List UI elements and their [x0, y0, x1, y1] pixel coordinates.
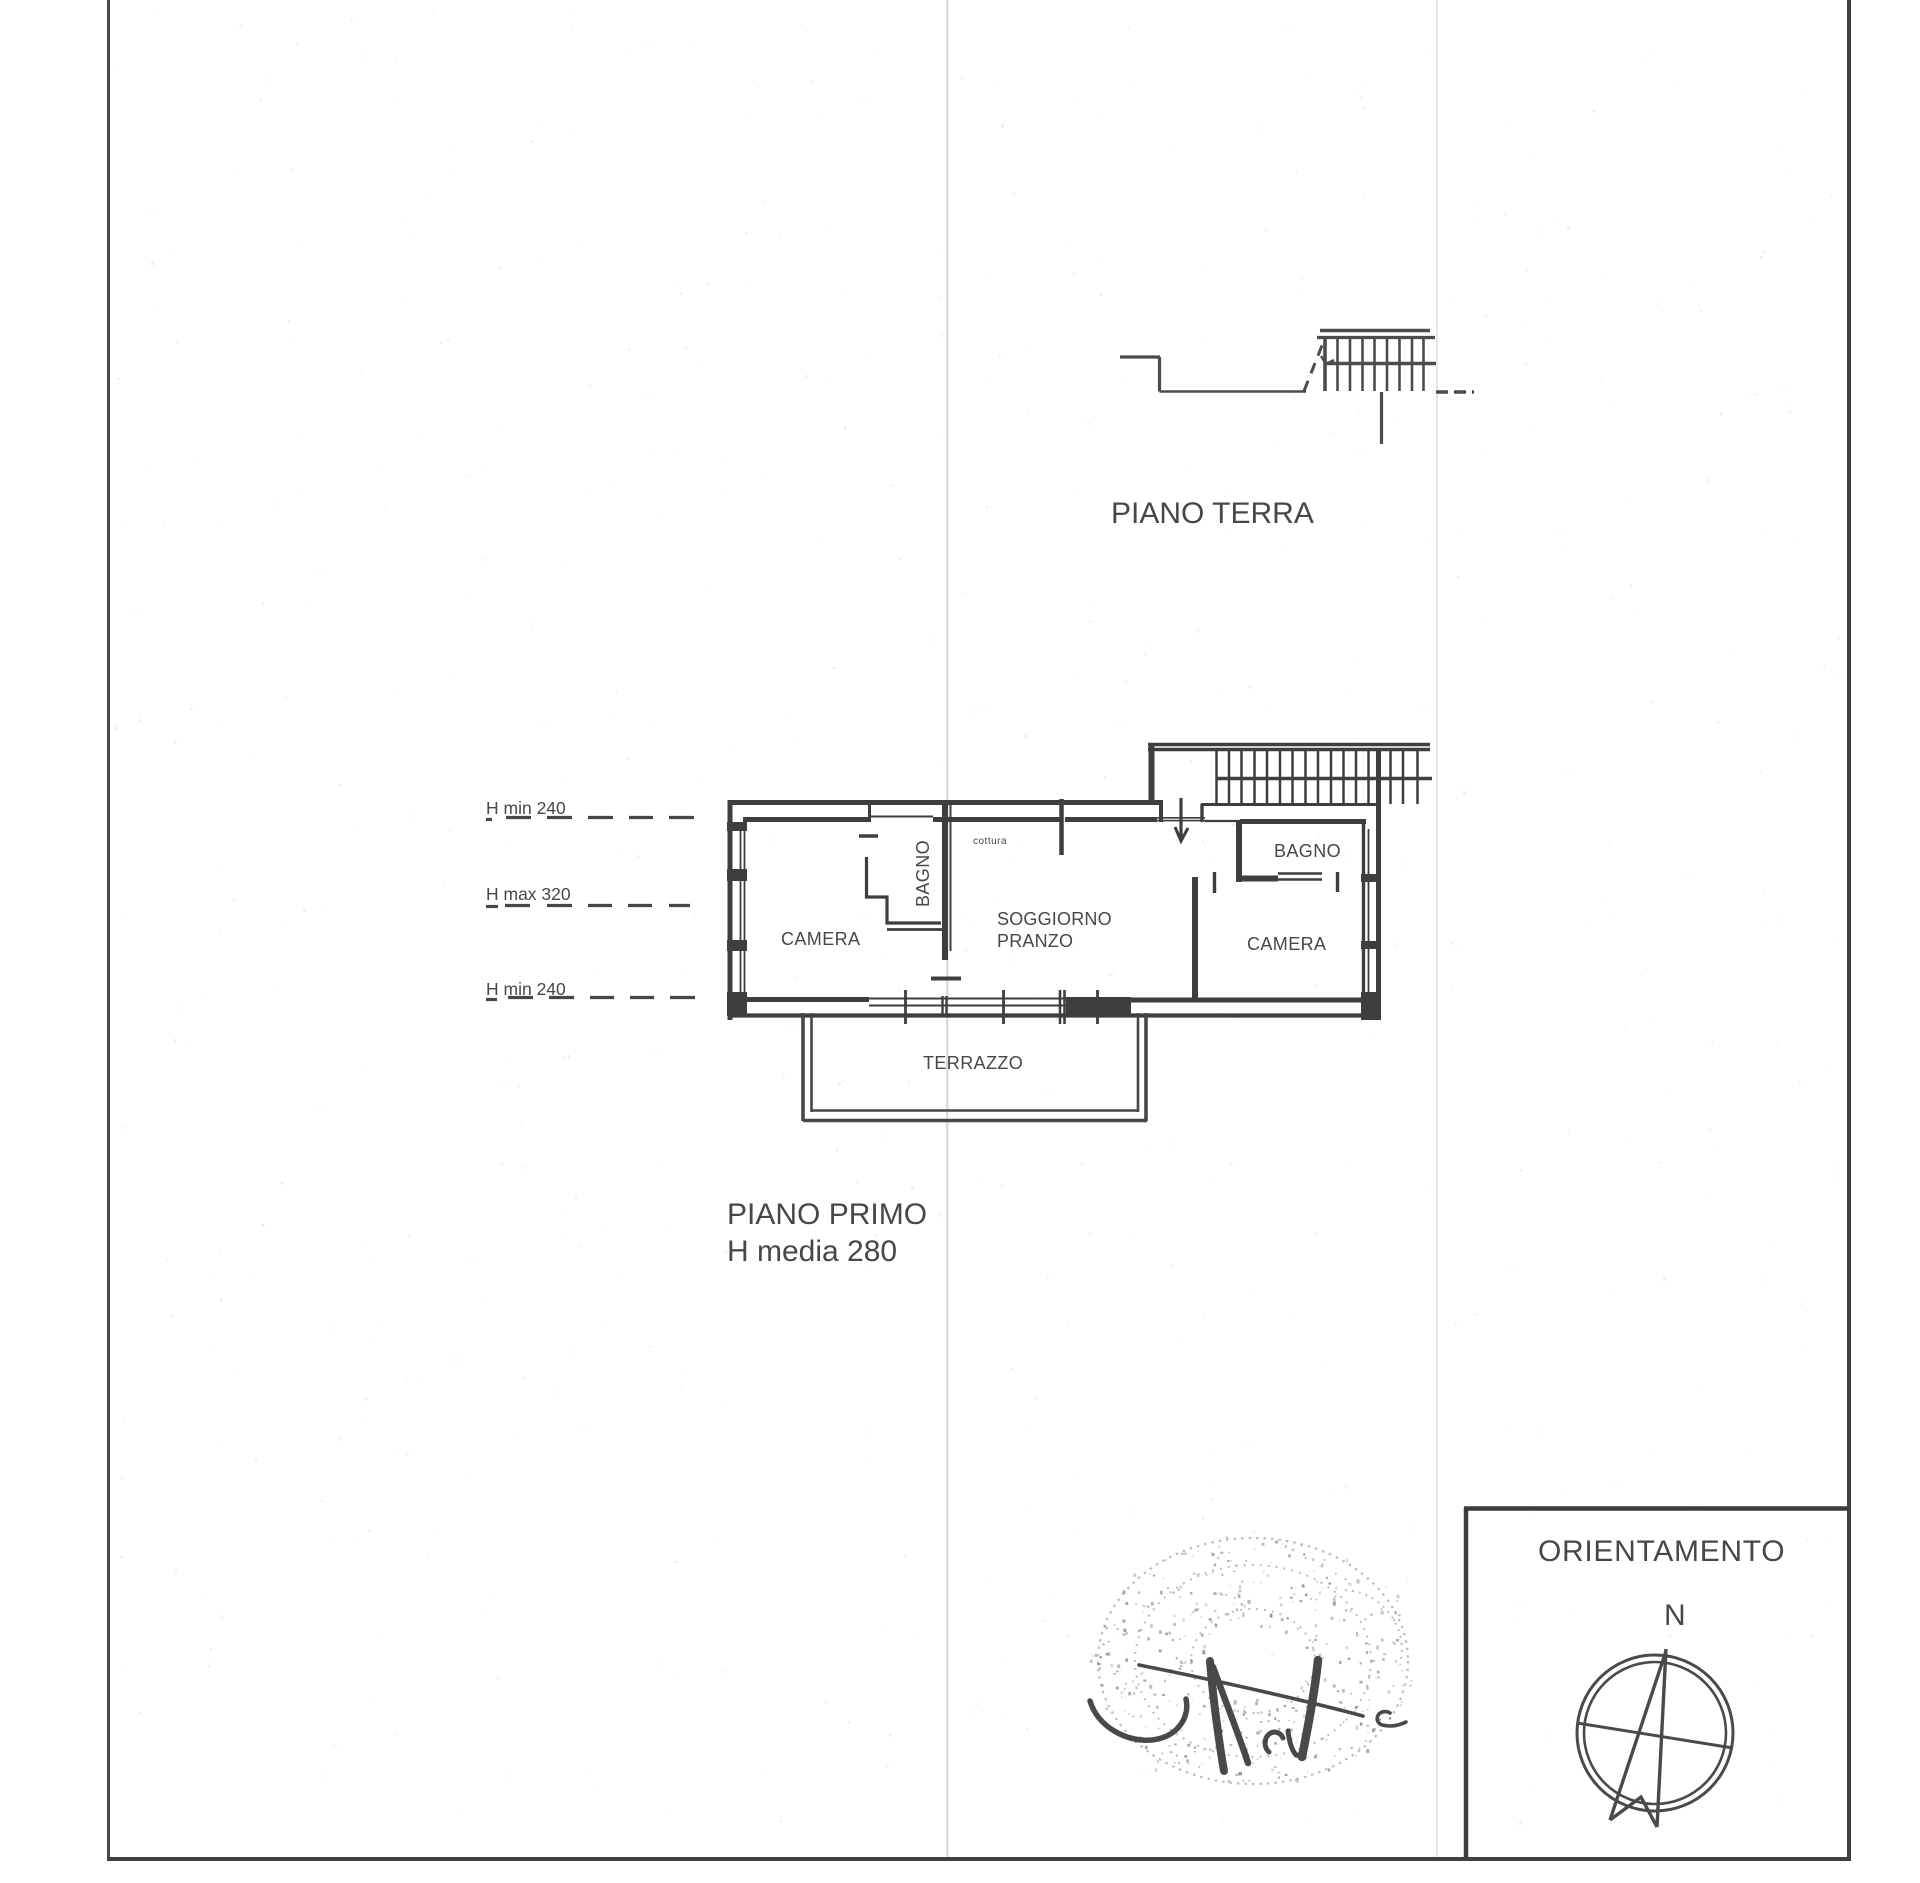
svg-text:BAGNO: BAGNO	[913, 840, 933, 907]
svg-text:ORIENTAMENTO: ORIENTAMENTO	[1538, 1535, 1785, 1568]
svg-text:BAGNO: BAGNO	[1274, 841, 1341, 861]
svg-text:H media 280: H media 280	[727, 1235, 897, 1268]
svg-text:PRANZO: PRANZO	[997, 931, 1073, 951]
svg-text:TERRAZZO: TERRAZZO	[923, 1053, 1023, 1073]
svg-text:PIANO PRIMO: PIANO PRIMO	[727, 1198, 927, 1231]
svg-text:N: N	[1664, 1599, 1686, 1632]
svg-text:H max 320: H max 320	[486, 884, 571, 904]
svg-text:CAMERA: CAMERA	[1247, 934, 1326, 954]
svg-text:CAMERA: CAMERA	[781, 929, 860, 949]
svg-text:SOGGIORNO: SOGGIORNO	[997, 909, 1112, 929]
svg-text:H min 240: H min 240	[486, 798, 566, 818]
svg-text:PIANO TERRA: PIANO TERRA	[1111, 497, 1314, 530]
svg-text:cottura: cottura	[973, 836, 1007, 847]
